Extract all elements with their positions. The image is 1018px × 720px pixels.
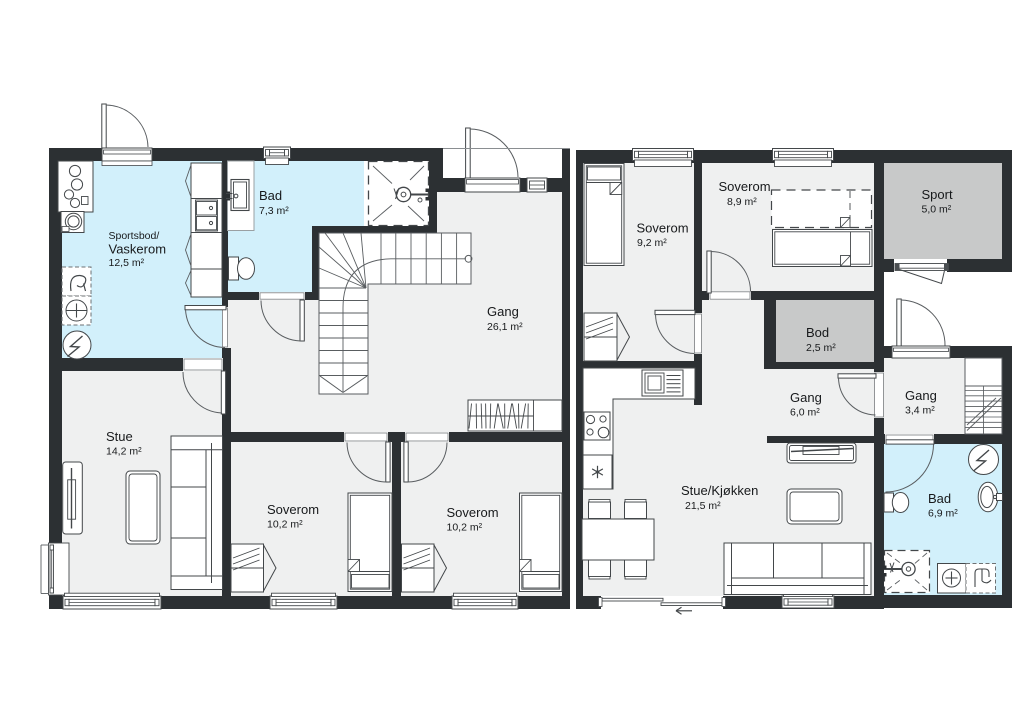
svg-text:2,5 m²: 2,5 m² [806, 342, 836, 354]
svg-text:21,5 m²: 21,5 m² [685, 500, 721, 512]
svg-text:12,5 m²: 12,5 m² [109, 257, 145, 269]
svg-text:Vaskerom: Vaskerom [109, 242, 167, 257]
svg-text:14,2 m²: 14,2 m² [106, 446, 142, 458]
svg-text:3,4 m²: 3,4 m² [905, 405, 935, 417]
svg-text:Sport: Sport [922, 187, 953, 202]
svg-text:6,9 m²: 6,9 m² [928, 508, 958, 520]
svg-text:Soverom: Soverom [267, 502, 319, 517]
svg-text:Sportsbod/: Sportsbod/ [109, 230, 160, 242]
svg-text:Soverom: Soverom [447, 505, 499, 520]
svg-text:10,2 m²: 10,2 m² [267, 519, 303, 531]
svg-text:Soverom: Soverom [637, 221, 689, 236]
svg-text:Gang: Gang [790, 390, 822, 405]
svg-text:8,9 m²: 8,9 m² [727, 196, 757, 208]
svg-text:Gang: Gang [905, 388, 937, 403]
svg-text:Bod: Bod [806, 325, 829, 340]
svg-text:6,0 m²: 6,0 m² [790, 407, 820, 419]
svg-text:5,0 m²: 5,0 m² [922, 204, 952, 216]
svg-text:Bad: Bad [928, 491, 951, 506]
svg-text:Bad: Bad [259, 188, 282, 203]
svg-text:26,1 m²: 26,1 m² [487, 321, 523, 333]
svg-text:7,3 m²: 7,3 m² [259, 205, 289, 217]
svg-text:Stue/Kjøkken: Stue/Kjøkken [681, 483, 758, 498]
svg-text:10,2 m²: 10,2 m² [447, 522, 483, 534]
svg-text:Gang: Gang [487, 304, 519, 319]
svg-text:Soverom: Soverom [719, 179, 771, 194]
svg-text:9,2 m²: 9,2 m² [637, 237, 667, 249]
svg-text:Stue: Stue [106, 429, 133, 444]
